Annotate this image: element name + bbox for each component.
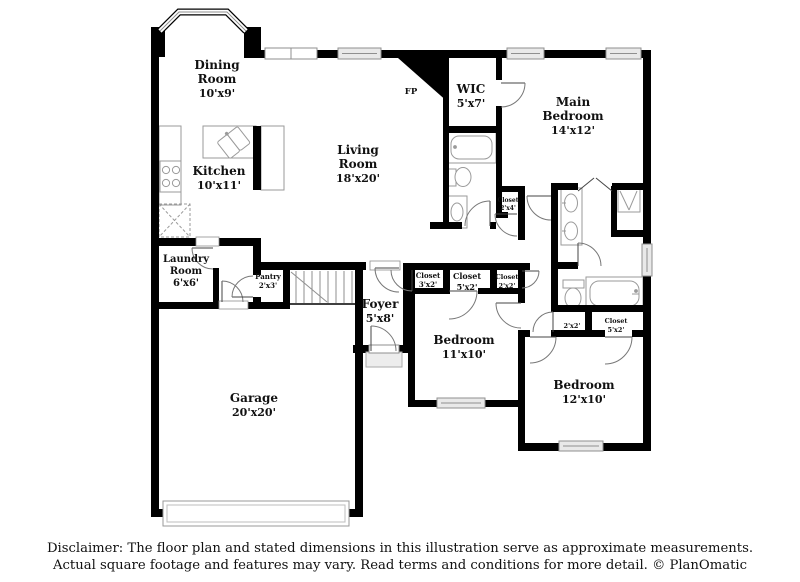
main-vanity-icon (561, 188, 582, 245)
svg-text:6'x6': 6'x6' (173, 278, 199, 289)
room-label-garage: Garage (230, 391, 279, 405)
room-label-dining: Dining (194, 58, 240, 72)
room-label-pantry: Pantry (255, 272, 282, 281)
svg-text:11'x10': 11'x10' (442, 348, 486, 361)
svg-text:10'x11': 10'x11' (197, 179, 241, 192)
room-label-main-bedroom: Main (556, 95, 591, 109)
svg-text:Bedroom: Bedroom (542, 109, 603, 123)
room-label-kitchen: Kitchen (193, 164, 246, 178)
svg-text:5'x2': 5'x2' (608, 326, 625, 334)
plan-background (0, 0, 800, 582)
window-living-1 (265, 48, 317, 59)
window-bedroom-12 (559, 441, 603, 451)
window-bedroom-11 (437, 398, 485, 408)
svg-text:2'x4': 2'x4' (500, 205, 516, 212)
svg-text:12'x10': 12'x10' (562, 393, 606, 406)
disclaimer: Disclaimer: The floor plan and stated di… (0, 541, 800, 574)
label-closet-5x2-bed11: Closet (453, 271, 481, 281)
label-closet-2x2-bath: 2'x2' (564, 322, 581, 330)
svg-text:5'x2': 5'x2' (457, 282, 478, 292)
kitchen-bar-counter (261, 126, 284, 190)
label-closet-3x2: Closet (416, 271, 441, 280)
garage-entry-threshold (219, 301, 248, 309)
svg-text:20'x20': 20'x20' (232, 406, 276, 419)
hall-toilet-icon (448, 168, 471, 187)
window-living-2 (338, 48, 381, 59)
room-label-laundry: Laundry (163, 254, 210, 265)
room-label-bedroom-11: Bedroom (433, 333, 494, 347)
svg-text:2'x3': 2'x3' (259, 281, 277, 290)
svg-text:18'x20': 18'x20' (336, 172, 380, 185)
svg-text:3'x2': 3'x2' (419, 280, 437, 289)
label-closet-2x2-bed11: Closet (496, 273, 519, 281)
window-main-bedroom-2 (606, 48, 641, 59)
room-label-wic: WIC (456, 82, 486, 96)
foyer-opening-threshold (370, 261, 400, 270)
kitchen-counter (159, 126, 181, 205)
svg-text:5'x7': 5'x7' (457, 97, 486, 110)
hall-bathtub-icon (447, 132, 496, 163)
label-closet-5x2-bath: Closet (605, 317, 628, 325)
window-main-bath (642, 244, 652, 276)
room-label-living: Living (337, 143, 379, 157)
front-door-threshold (369, 345, 399, 353)
svg-text:Room: Room (339, 157, 378, 171)
disclaimer-line-2: Actual square footage and features may v… (0, 558, 800, 575)
room-label-foyer: Foyer (362, 297, 399, 311)
disclaimer-line-1: Disclaimer: The floor plan and stated di… (0, 541, 800, 558)
svg-text:14'x12': 14'x12' (551, 124, 595, 137)
svg-text:5'x8': 5'x8' (366, 312, 395, 325)
room-label-bedroom-12: Bedroom (553, 378, 614, 392)
floor-plan-svg: Dining Room 10'x9' Kitchen 10'x11' Livin… (0, 0, 800, 582)
svg-text:Room: Room (198, 72, 237, 86)
label-closet-2x4: Closet (497, 197, 518, 204)
garage-door (163, 501, 349, 526)
kitchen-opening-threshold (196, 237, 219, 246)
svg-text:10'x9': 10'x9' (199, 87, 235, 100)
svg-text:Room: Room (170, 266, 203, 277)
svg-text:2'x2': 2'x2' (499, 282, 516, 290)
floor-plan-page: Dining Room 10'x9' Kitchen 10'x11' Livin… (0, 0, 800, 582)
front-porch (366, 352, 402, 367)
label-fireplace: FP (405, 87, 418, 97)
window-main-bedroom-1 (507, 48, 544, 59)
